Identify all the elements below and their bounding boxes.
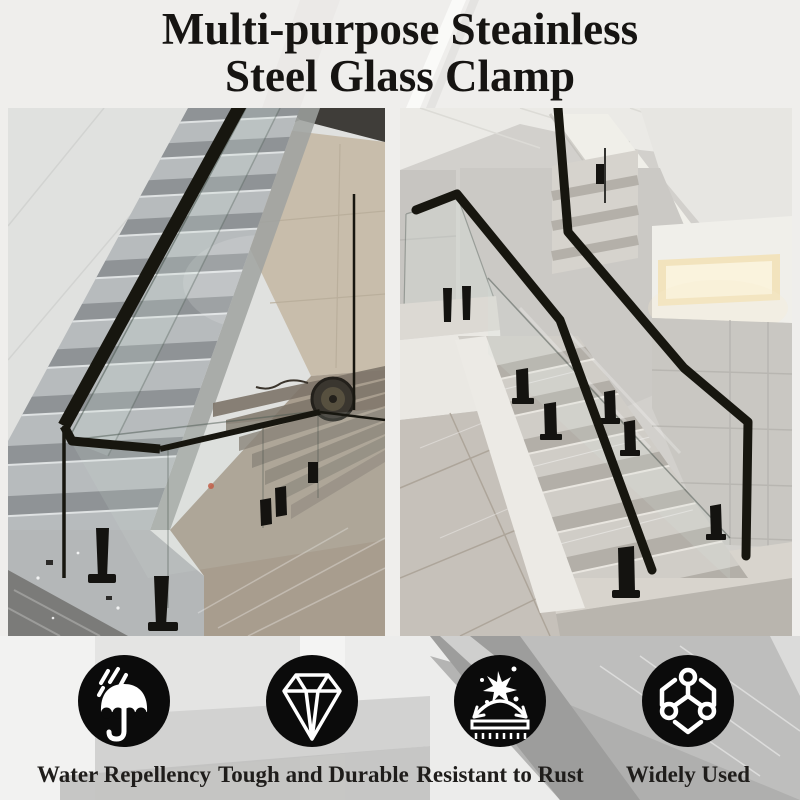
feature-label: Resistant to Rust xyxy=(406,762,594,787)
feature-label: Tough and Durable xyxy=(218,762,406,787)
feature-label: Widely Used xyxy=(594,762,782,787)
photo-row xyxy=(8,108,792,636)
left-staircase-photo xyxy=(8,108,385,636)
feature-icon-circle xyxy=(454,655,546,747)
feature-icon-circle xyxy=(266,655,358,747)
page-title: Multi-purpose Steainless Steel Glass Cla… xyxy=(0,0,800,100)
feature-icon-circle xyxy=(642,655,734,747)
ceiling-light-cove xyxy=(648,216,792,336)
feature-icon-circle xyxy=(78,655,170,747)
feature-tough-durable: Tough and Durable xyxy=(218,636,406,800)
right-staircase-photo-art xyxy=(400,108,792,636)
diamond-icon xyxy=(266,655,358,747)
right-staircase-photo xyxy=(400,108,792,636)
feature-list: Water Repellency Tough and Durable xyxy=(0,636,800,800)
feature-water-repellency: Water Repellency xyxy=(30,636,218,800)
feature-label: Water Repellency xyxy=(30,762,218,787)
title-line-1: Multi-purpose Steainless xyxy=(162,4,638,54)
title-line-2: Steel Glass Clamp xyxy=(225,51,575,101)
feature-widely-used: Widely Used xyxy=(594,636,782,800)
molecule-icon xyxy=(642,655,734,747)
features-section: Water Repellency Tough and Durable xyxy=(0,636,800,800)
left-staircase-photo-art xyxy=(8,108,385,636)
product-infographic: Multi-purpose Steainless Steel Glass Cla… xyxy=(0,0,800,800)
feature-rust-resistant: Resistant to Rust xyxy=(406,636,594,800)
umbrella-rain-icon xyxy=(78,655,170,747)
splash-arrow-icon xyxy=(454,655,546,747)
